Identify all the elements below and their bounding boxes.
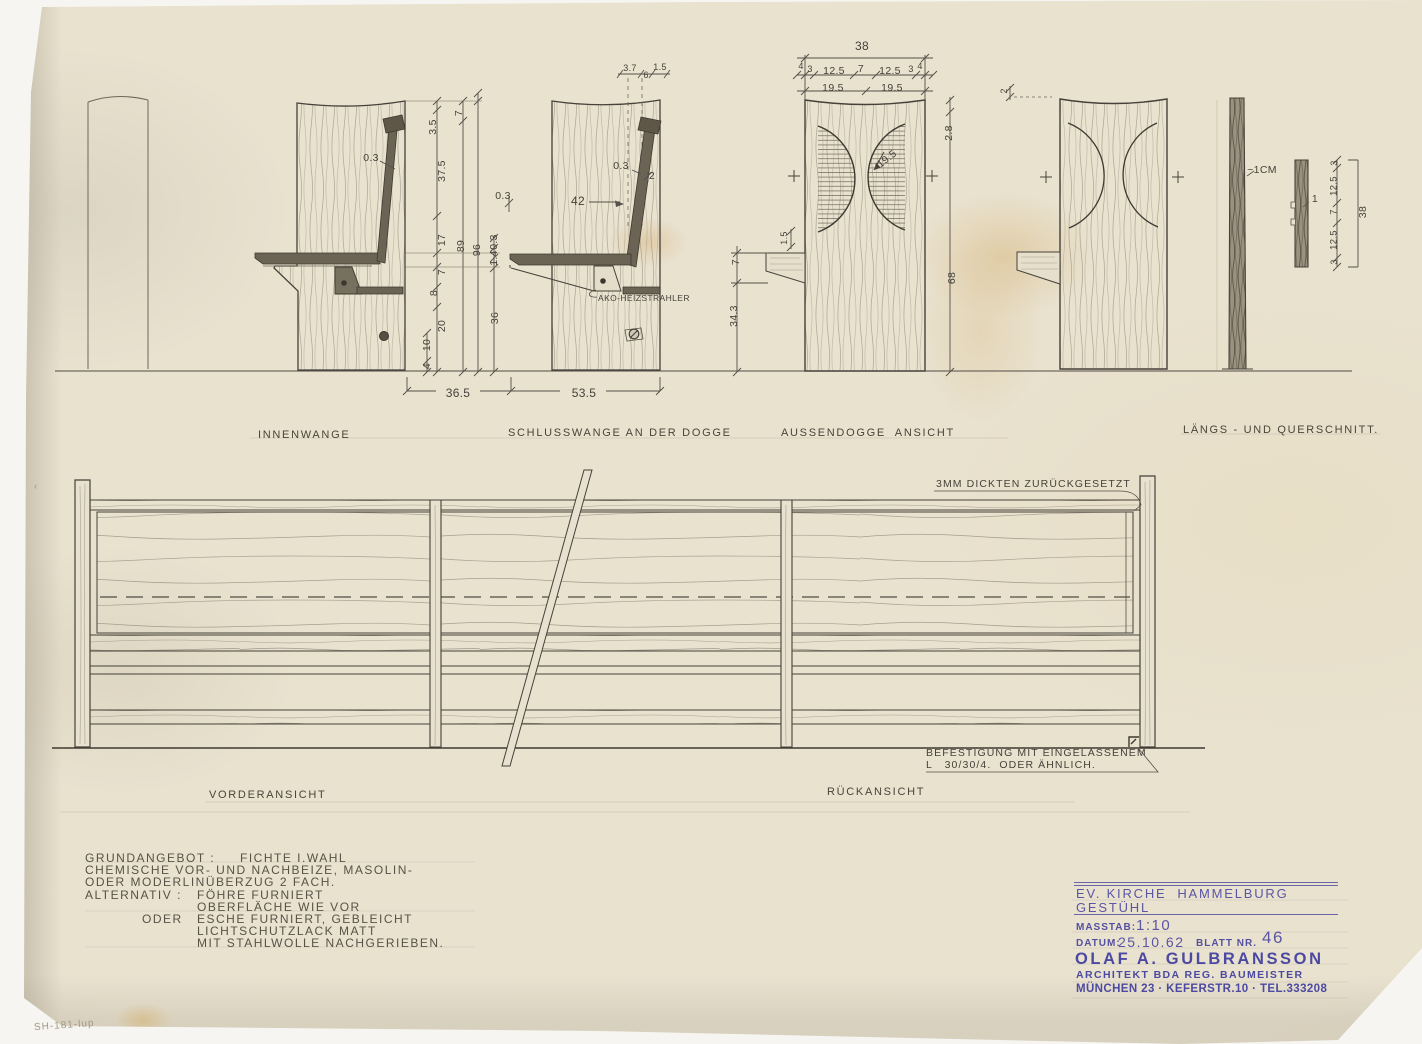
seat-section [510,254,631,265]
mounting-leader [926,749,1158,772]
angle-bracket [1129,737,1139,747]
divider-post-2 [781,500,792,747]
sheet-number-value: 46 [1262,928,1284,948]
left-post [75,480,90,747]
rail-section [357,287,403,294]
architect-name-stamp: OLAF A. GULBRANSSON [1075,950,1324,969]
elevation-pew [75,470,1158,772]
sheet-number-label: BLATT NR. [1196,938,1257,949]
dogge-board [1060,99,1167,369]
back-panel [97,512,1133,633]
scale-value: 1:10 [1136,917,1171,934]
seat-board [88,635,1140,651]
notches [1291,202,1295,225]
rail-section [623,287,660,294]
scanned-drawing-sheet: 0.33.5737.517899678201040.31.43636.50.33… [0,0,1422,1044]
scale-label: MASSTAB: [1076,922,1136,933]
laengsschnitt-strip [1229,98,1246,369]
title-block: EV. KIRCHE HAMMELBURG GESTÜHL MASSTAB: 1… [1072,866,1348,1008]
right-post [1140,476,1155,747]
drawing-aussendogge [766,100,938,371]
drawing-dogge-2 [1006,84,1184,369]
seat-section [255,253,380,264]
seat-rail-stub [766,253,805,283]
drawing-innenwange [88,96,405,370]
project-title-line2: GESTÜHL [1076,900,1150,915]
title-rule-mid [1074,914,1338,915]
architect-address-stamp: MÜNCHEN 23 · KEFERSTR.10 · TEL.333208 [1076,983,1327,995]
top-rail [90,500,1140,510]
mid-rail [90,666,1140,674]
drawing-schlusswange [510,78,661,370]
date-value: 25.10.62 [1118,934,1185,950]
drawing-schnitte [1222,98,1309,369]
architect-title-stamp: ARCHITEKT BDA REG. BAUMEISTER [1076,969,1303,981]
date-label: DATUM: [1076,938,1121,949]
querschnitt-strip [1295,160,1308,267]
dowel [380,332,389,341]
foot-rail [85,710,1140,724]
project-title-line1: EV. KIRCHE HAMMELBURG [1076,886,1289,901]
